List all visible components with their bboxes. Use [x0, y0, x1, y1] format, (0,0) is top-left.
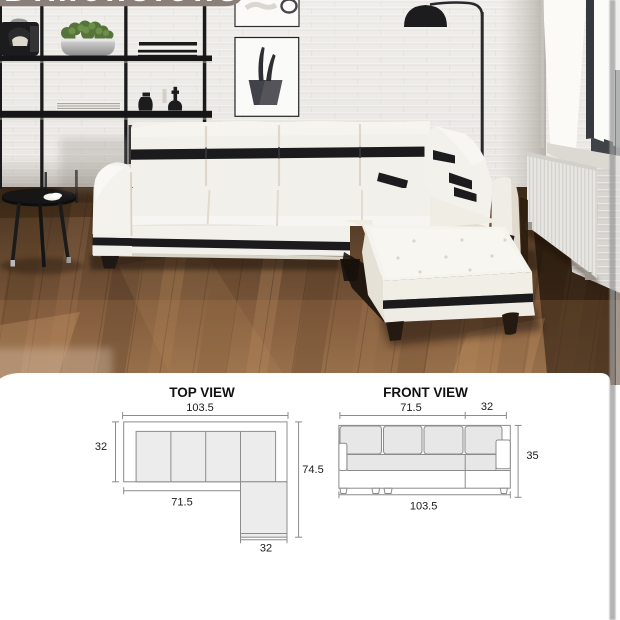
- svg-text:103.5: 103.5: [186, 402, 214, 414]
- svg-text:TOP VIEW: TOP VIEW: [169, 385, 235, 400]
- svg-text:Dimensions: Dimensions: [4, 0, 242, 9]
- svg-text:32: 32: [95, 441, 107, 453]
- svg-text:103.5: 103.5: [410, 501, 438, 513]
- svg-text:74.5: 74.5: [302, 464, 323, 476]
- svg-text:71.5: 71.5: [171, 497, 192, 509]
- svg-text:FRONT VIEW: FRONT VIEW: [383, 385, 468, 400]
- svg-text:71.5: 71.5: [400, 402, 421, 414]
- svg-text:35: 35: [526, 450, 538, 462]
- svg-text:32: 32: [481, 401, 493, 413]
- svg-text:32: 32: [260, 543, 272, 555]
